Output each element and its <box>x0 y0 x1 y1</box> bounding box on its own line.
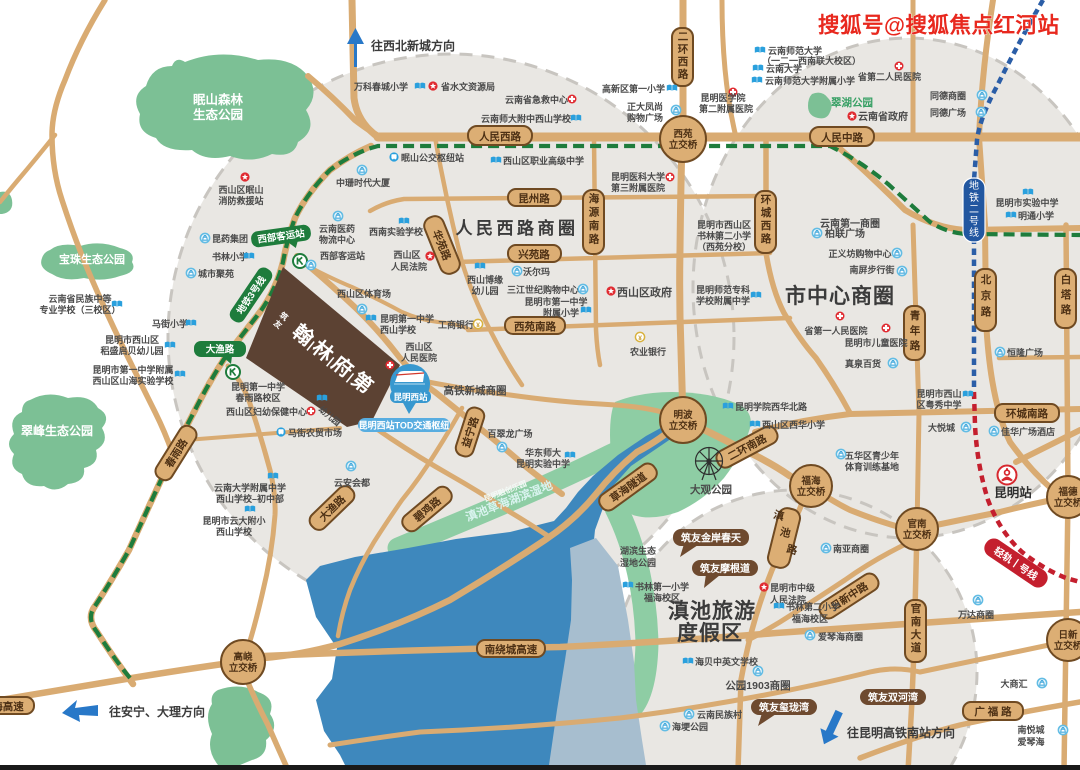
svg-text:马街小学: 马街小学 <box>152 318 188 329</box>
svg-text:恒隆广场: 恒隆广场 <box>1007 347 1043 358</box>
svg-text:海高速: 海高速 <box>0 700 24 713</box>
svg-text:书林第一小学: 书林第一小学 <box>635 581 689 592</box>
svg-text:昆明站: 昆明站 <box>994 485 1032 500</box>
svg-text:北京路: 北京路 <box>981 273 992 318</box>
svg-text:云南省急救中心: 云南省急救中心 <box>505 94 568 105</box>
svg-text:云南省民族中等: 云南省民族中等 <box>48 293 111 304</box>
svg-text:云南省政府: 云南省政府 <box>858 110 908 123</box>
svg-text:二环西路: 二环西路 <box>678 31 689 81</box>
svg-text:昆明学院西华北路: 昆明学院西华北路 <box>735 401 808 412</box>
svg-text:爱琴海: 爱琴海 <box>1017 736 1044 747</box>
svg-text:公园1903商圈: 公园1903商圈 <box>725 679 790 692</box>
svg-text:购物广场: 购物广场 <box>627 112 663 123</box>
svg-text:昆明医科大学: 昆明医科大学 <box>611 171 665 182</box>
svg-text:人民医院: 人民医院 <box>400 352 437 363</box>
svg-text:云南大学附属中学: 云南大学附属中学 <box>214 482 286 493</box>
svg-text:眠山公交枢纽站: 眠山公交枢纽站 <box>401 152 464 163</box>
svg-text:云安会都: 云安会都 <box>334 477 370 488</box>
svg-text:立交桥: 立交桥 <box>1054 497 1080 509</box>
svg-text:五华区青少年: 五华区青少年 <box>845 450 899 461</box>
svg-text:昆明医学院: 昆明医学院 <box>700 92 745 103</box>
svg-text:附属小学: 附属小学 <box>543 307 579 318</box>
svg-text:人民西路: 人民西路 <box>479 130 521 143</box>
svg-text:区粤秀中学: 区粤秀中学 <box>916 399 961 410</box>
svg-text:西苑南路: 西苑南路 <box>514 320 556 333</box>
svg-text:福海校区: 福海校区 <box>643 592 680 603</box>
svg-text:西南实验学校: 西南实验学校 <box>369 226 424 237</box>
svg-text:西山学校–初中部: 西山学校–初中部 <box>216 493 284 504</box>
svg-text:白塔路: 白塔路 <box>1061 273 1072 316</box>
svg-text:云南师范大学附属小学: 云南师范大学附属小学 <box>765 75 855 86</box>
svg-text:南绕城高速: 南绕城高速 <box>485 643 538 656</box>
svg-text:度假区: 度假区 <box>677 621 743 645</box>
svg-text:环城西路: 环城西路 <box>761 194 772 245</box>
svg-text:高新区第一小学: 高新区第一小学 <box>602 83 665 94</box>
svg-text:立交桥: 立交桥 <box>669 420 698 432</box>
svg-text:生态公园: 生态公园 <box>193 107 243 122</box>
svg-text:省水文资源局: 省水文资源局 <box>440 81 495 92</box>
svg-text:书林小学: 书林小学 <box>212 251 248 262</box>
svg-text:筑友玺珑湾: 筑友玺珑湾 <box>759 701 809 714</box>
svg-text:西山博缘: 西山博缘 <box>467 274 503 285</box>
svg-text:昆药集团: 昆药集团 <box>212 233 248 244</box>
svg-text:书林第二小学: 书林第二小学 <box>786 601 840 612</box>
svg-text:佳华广场酒店: 佳华广场酒店 <box>1001 426 1055 437</box>
svg-text:西山区妇幼保健中心: 西山区妇幼保健中心 <box>226 406 307 417</box>
svg-text:立交桥: 立交桥 <box>229 662 258 674</box>
svg-text:西山区山海实验学校: 西山区山海实验学校 <box>92 375 174 386</box>
svg-text:云南大学: 云南大学 <box>766 63 802 74</box>
svg-text:西山区: 西山区 <box>405 341 432 352</box>
svg-text:西山区西华小学: 西山区西华小学 <box>762 419 825 430</box>
svg-text:昆明市第一中学附属: 昆明市第一中学附属 <box>92 364 173 375</box>
svg-text:明通小学: 明通小学 <box>1018 210 1054 221</box>
svg-text:翠湖公园: 翠湖公园 <box>831 96 873 109</box>
svg-text:南屏步行街: 南屏步行街 <box>849 264 894 275</box>
svg-text:青年路: 青年路 <box>910 309 921 352</box>
svg-text:湿地公园: 湿地公园 <box>620 557 656 568</box>
svg-text:昆明市西山区: 昆明市西山区 <box>105 334 159 345</box>
svg-text:海贝中英文学校: 海贝中英文学校 <box>695 656 759 667</box>
svg-text:农业银行: 农业银行 <box>629 346 666 357</box>
svg-text:兴苑路: 兴苑路 <box>518 248 550 261</box>
svg-text:城市聚苑: 城市聚苑 <box>198 268 234 279</box>
svg-text:海埂公园: 海埂公园 <box>672 721 708 732</box>
svg-text:真泉百货: 真泉百货 <box>845 358 881 369</box>
svg-text:同德广场: 同德广场 <box>930 107 966 118</box>
svg-text:省第一人民医院: 省第一人民医院 <box>803 325 867 336</box>
svg-text:宝珠生态公园: 宝珠生态公园 <box>59 252 125 266</box>
svg-text:大商汇: 大商汇 <box>1000 678 1027 689</box>
svg-text:中珊时代大厦: 中珊时代大厦 <box>336 177 391 188</box>
svg-text:明波: 明波 <box>673 409 693 421</box>
svg-text:湖滨生态: 湖滨生态 <box>620 545 656 556</box>
svg-text:消防救援站: 消防救援站 <box>218 195 263 206</box>
svg-text:正大凤尚: 正大凤尚 <box>627 101 663 112</box>
svg-text:昆明市西山区: 昆明市西山区 <box>697 219 751 230</box>
svg-text:西山区: 西山区 <box>393 249 420 260</box>
svg-text:爱琴海商圈: 爱琴海商圈 <box>818 631 863 642</box>
svg-text:华东师大: 华东师大 <box>525 447 561 458</box>
svg-text:昆明市中级: 昆明市中级 <box>770 582 816 593</box>
svg-text:人民中路: 人民中路 <box>821 131 863 144</box>
svg-text:福德: 福德 <box>1057 486 1078 498</box>
svg-text:工商银行: 工商银行 <box>438 319 474 330</box>
svg-text:立交桥: 立交桥 <box>1054 640 1080 652</box>
svg-text:沃尔玛: 沃尔玛 <box>523 266 550 277</box>
svg-text:往昆明高铁南站方向: 往昆明高铁南站方向 <box>847 725 955 740</box>
svg-text:幼儿园: 幼儿园 <box>471 285 498 296</box>
svg-text:正义坊购物中心: 正义坊购物中心 <box>828 248 891 259</box>
svg-text:体育训练基地: 体育训练基地 <box>845 461 899 472</box>
svg-text:人民西路商圈: 人民西路商圈 <box>456 218 579 238</box>
svg-text:人民法院: 人民法院 <box>390 261 427 272</box>
svg-text:筑友双河湾: 筑友双河湾 <box>868 691 918 704</box>
svg-text:稆盛启贝幼儿园: 稆盛启贝幼儿园 <box>100 345 163 356</box>
svg-text:高铁新城商圈: 高铁新城商圈 <box>444 384 507 397</box>
svg-text:筑友摩根道: 筑友摩根道 <box>700 562 750 575</box>
svg-text:三江世纪购物中心: 三江世纪购物中心 <box>507 284 579 295</box>
svg-text:云南师大附中西山学校: 云南师大附中西山学校 <box>481 113 572 124</box>
svg-text:大悦城: 大悦城 <box>928 422 955 433</box>
svg-text:南悦城: 南悦城 <box>1017 724 1044 735</box>
svg-text:省第二人民医院: 省第二人民医院 <box>857 71 921 82</box>
svg-text:西山区体育场: 西山区体育场 <box>337 288 391 299</box>
svg-text:学校附属中学: 学校附属中学 <box>696 295 750 306</box>
svg-text:眠山森林: 眠山森林 <box>193 92 244 107</box>
svg-text:昆明西站: 昆明西站 <box>393 392 428 402</box>
svg-text:昆明第一中学: 昆明第一中学 <box>231 381 285 392</box>
svg-text:西山学校: 西山学校 <box>216 526 253 537</box>
svg-text:昆明实验中学: 昆明实验中学 <box>516 458 570 469</box>
svg-text:云南民族村: 云南民族村 <box>697 709 742 720</box>
svg-text:西山区政府: 西山区政府 <box>617 285 672 299</box>
svg-text:往西北新城方向: 往西北新城方向 <box>371 38 455 53</box>
svg-text:高峣: 高峣 <box>233 651 253 663</box>
svg-text:云南师范大学: 云南师范大学 <box>768 45 822 56</box>
svg-text:福海: 福海 <box>800 475 821 487</box>
svg-text:立交桥: 立交桥 <box>797 486 826 498</box>
svg-text:筑友金岸春天: 筑友金岸春天 <box>681 532 742 545</box>
svg-text:昆明第一中学: 昆明第一中学 <box>380 313 434 324</box>
svg-text:物流中心: 物流中心 <box>319 234 355 245</box>
svg-text:春雨路校区: 春雨路校区 <box>234 392 280 403</box>
svg-text:专业学校（三校区）: 专业学校（三校区） <box>39 304 120 315</box>
svg-text:马街农贸市场: 马街农贸市场 <box>288 427 342 438</box>
svg-text:昆明市实验中学: 昆明市实验中学 <box>995 197 1058 208</box>
svg-text:第二附属医院: 第二附属医院 <box>699 103 753 114</box>
svg-text:大观公园: 大观公园 <box>690 483 732 496</box>
svg-text:昆明西站TOD交通枢纽: 昆明西站TOD交通枢纽 <box>359 420 450 431</box>
svg-text:西山学校: 西山学校 <box>380 324 417 335</box>
svg-text:市中心商圈: 市中心商圈 <box>785 284 895 308</box>
svg-text:第三附属医院: 第三附属医院 <box>611 182 665 193</box>
svg-text:福海校区: 福海校区 <box>791 613 828 624</box>
svg-text:柏联广场: 柏联广场 <box>825 227 865 240</box>
svg-text:日新: 日新 <box>1058 629 1078 641</box>
svg-text:昆明市儿童医院: 昆明市儿童医院 <box>844 337 907 348</box>
svg-text:翠峰生态公园: 翠峰生态公园 <box>21 423 93 438</box>
svg-text:同德商圈: 同德商圈 <box>930 90 966 101</box>
svg-text:西部客运站: 西部客运站 <box>320 250 365 261</box>
svg-text:大渔路: 大渔路 <box>206 344 235 356</box>
svg-text:立交桥: 立交桥 <box>669 139 698 151</box>
svg-text:南亚商圈: 南亚商圈 <box>833 543 869 554</box>
svg-text:西苑: 西苑 <box>673 128 693 140</box>
svg-text:立交桥: 立交桥 <box>903 529 932 541</box>
svg-text:云南医药: 云南医药 <box>319 223 355 234</box>
svg-text:滇池旅游: 滇池旅游 <box>668 599 756 623</box>
svg-text:西山区眠山: 西山区眠山 <box>218 184 263 195</box>
svg-text:书林第二小学: 书林第二小学 <box>697 230 751 241</box>
svg-text:搜狐号@搜狐焦点红河站: 搜狐号@搜狐焦点红河站 <box>818 13 1059 38</box>
svg-text:往安宁、大理方向: 往安宁、大理方向 <box>109 704 205 719</box>
svg-text:百翠龙广场: 百翠龙广场 <box>487 428 532 439</box>
svg-text:昆明师范专科: 昆明师范专科 <box>696 284 750 295</box>
svg-text:万达商圈: 万达商圈 <box>957 609 994 620</box>
svg-text:环城南路: 环城南路 <box>1006 407 1048 420</box>
svg-text:（西苑分校）: （西苑分校） <box>697 241 751 252</box>
svg-text:西山区职业高级中学: 西山区职业高级中学 <box>503 155 584 166</box>
svg-text:广 福 路: 广 福 路 <box>974 705 1012 718</box>
svg-text:地铁二号线: 地铁二号线 <box>969 179 979 239</box>
svg-text:官南: 官南 <box>907 518 927 530</box>
svg-text:昆明市西山: 昆明市西山 <box>916 388 961 399</box>
svg-text:昆明市第一中学: 昆明市第一中学 <box>524 296 587 307</box>
svg-text:万科春城小学: 万科春城小学 <box>353 81 408 92</box>
svg-text:昆明市云大附小: 昆明市云大附小 <box>202 515 265 526</box>
svg-text:昆州路: 昆州路 <box>518 192 550 205</box>
